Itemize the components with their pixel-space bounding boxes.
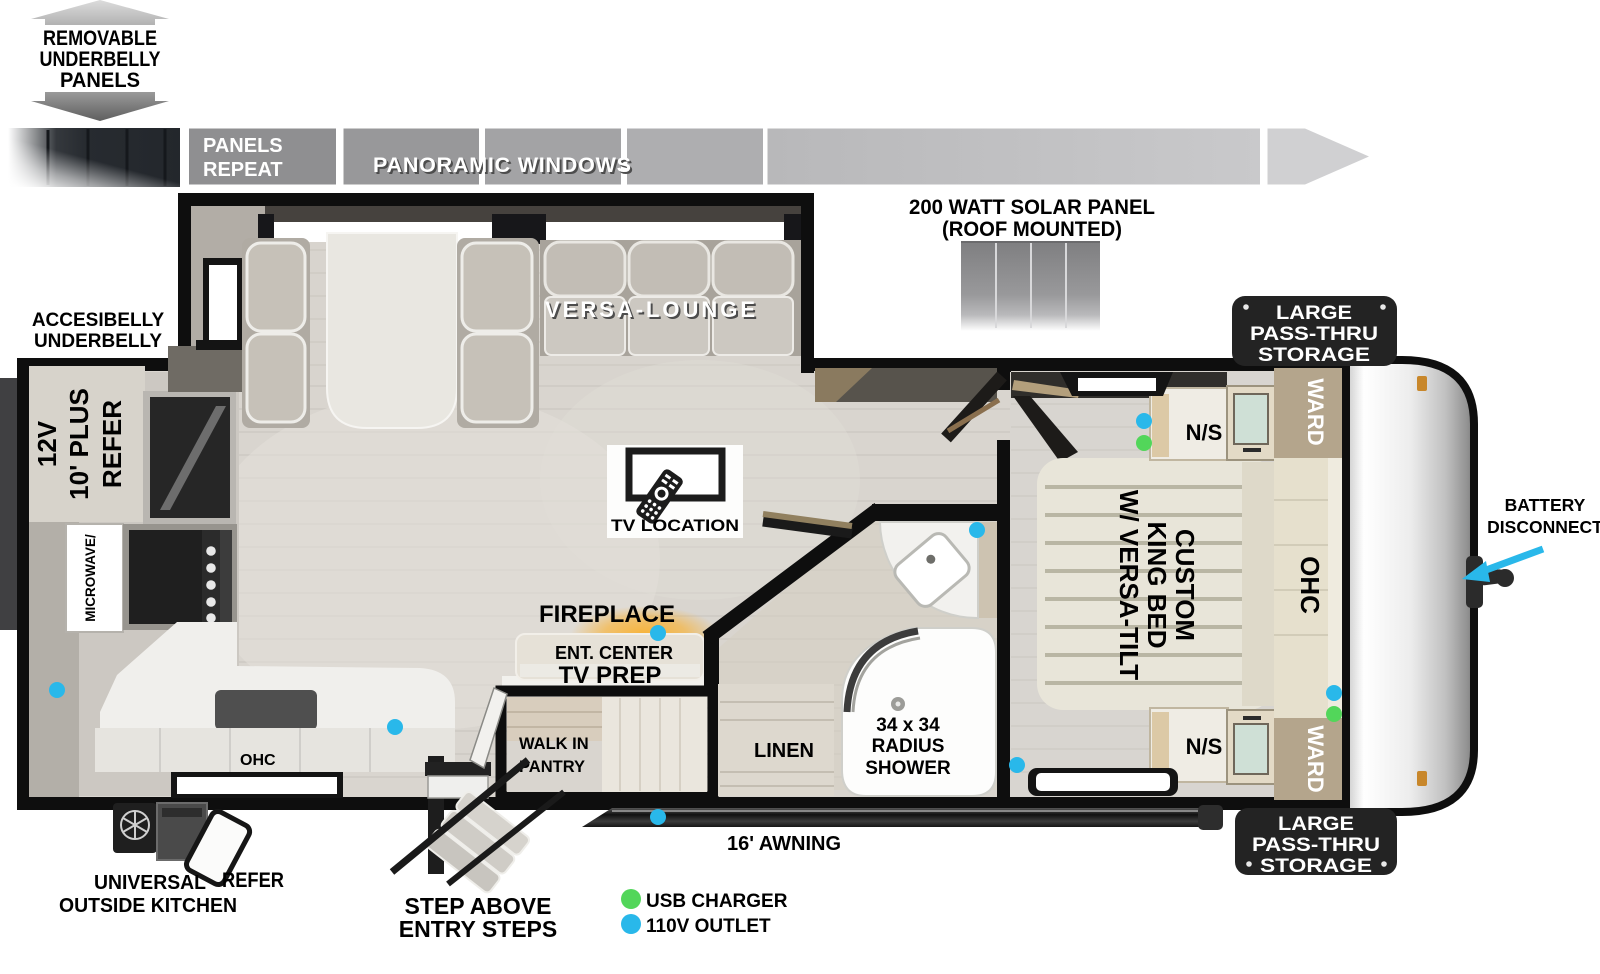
svg-text:ACCESIBELLY: ACCESIBELLY bbox=[32, 310, 165, 331]
svg-text:PANTRY: PANTRY bbox=[519, 758, 585, 776]
svg-text:VERSA-LOUNGE: VERSA-LOUNGE bbox=[545, 297, 755, 322]
svg-text:REPEAT: REPEAT bbox=[203, 159, 283, 181]
svg-text:10' PLUS: 10' PLUS bbox=[64, 388, 94, 500]
svg-text:(ROOF MOUNTED): (ROOF MOUNTED) bbox=[942, 218, 1122, 241]
svg-text:CUSTOM: CUSTOM bbox=[1170, 529, 1200, 641]
svg-text:N/S: N/S bbox=[1186, 734, 1223, 759]
svg-text:BATTERY: BATTERY bbox=[1505, 495, 1586, 515]
svg-text:LARGE: LARGE bbox=[1278, 813, 1354, 835]
svg-text:DISCONNECT: DISCONNECT bbox=[1487, 517, 1600, 537]
svg-text:SHOWER: SHOWER bbox=[865, 758, 951, 779]
svg-text:WARD: WARD bbox=[1303, 378, 1328, 445]
svg-text:RADIUS: RADIUS bbox=[872, 736, 945, 757]
svg-text:STORAGE: STORAGE bbox=[1260, 855, 1372, 877]
svg-text:LINEN: LINEN bbox=[754, 740, 814, 762]
svg-text:W/ VERSA-TILT: W/ VERSA-TILT bbox=[1114, 490, 1144, 680]
svg-text:PANORAMIC WINDOWS: PANORAMIC WINDOWS bbox=[373, 153, 631, 177]
svg-text:OUTSIDE KITCHEN: OUTSIDE KITCHEN bbox=[59, 895, 237, 917]
svg-text:UNIVERSAL: UNIVERSAL bbox=[94, 872, 206, 894]
svg-text:MICROWAVE/: MICROWAVE/ bbox=[83, 534, 98, 622]
svg-text:110V OUTLET: 110V OUTLET bbox=[646, 916, 771, 937]
svg-text:PANELS: PANELS bbox=[60, 68, 140, 92]
svg-text:FIREPLACE: FIREPLACE bbox=[539, 601, 675, 628]
svg-text:REFER: REFER bbox=[222, 869, 284, 892]
svg-text:200 WATT SOLAR PANEL: 200 WATT SOLAR PANEL bbox=[909, 196, 1155, 219]
svg-text:34 x 34: 34 x 34 bbox=[876, 715, 940, 736]
svg-text:16' AWNING: 16' AWNING bbox=[727, 833, 841, 855]
svg-text:OHC: OHC bbox=[240, 752, 276, 769]
svg-text:USB CHARGER: USB CHARGER bbox=[646, 891, 788, 912]
svg-text:TV PREP: TV PREP bbox=[559, 662, 662, 689]
svg-text:KING BED: KING BED bbox=[1142, 521, 1172, 648]
svg-text:LARGE: LARGE bbox=[1276, 302, 1352, 324]
svg-text:PASS-THRU: PASS-THRU bbox=[1250, 323, 1378, 345]
svg-text:ENT. CENTER: ENT. CENTER bbox=[555, 643, 673, 663]
svg-text:PASS-THRU: PASS-THRU bbox=[1252, 834, 1380, 856]
svg-text:REFER: REFER bbox=[97, 400, 127, 488]
svg-text:OHC: OHC bbox=[1295, 556, 1325, 614]
svg-text:N/S: N/S bbox=[1186, 420, 1223, 445]
svg-text:TV LOCATION: TV LOCATION bbox=[611, 516, 739, 535]
svg-text:ENTRY STEPS: ENTRY STEPS bbox=[399, 916, 557, 942]
svg-text:UNDERBELLY: UNDERBELLY bbox=[34, 331, 162, 352]
svg-text:12V: 12V bbox=[32, 420, 62, 467]
svg-text:STORAGE: STORAGE bbox=[1258, 344, 1370, 366]
svg-text:WALK IN: WALK IN bbox=[519, 735, 589, 753]
svg-text:WARD: WARD bbox=[1303, 725, 1328, 792]
svg-text:PANELS: PANELS bbox=[203, 135, 283, 157]
